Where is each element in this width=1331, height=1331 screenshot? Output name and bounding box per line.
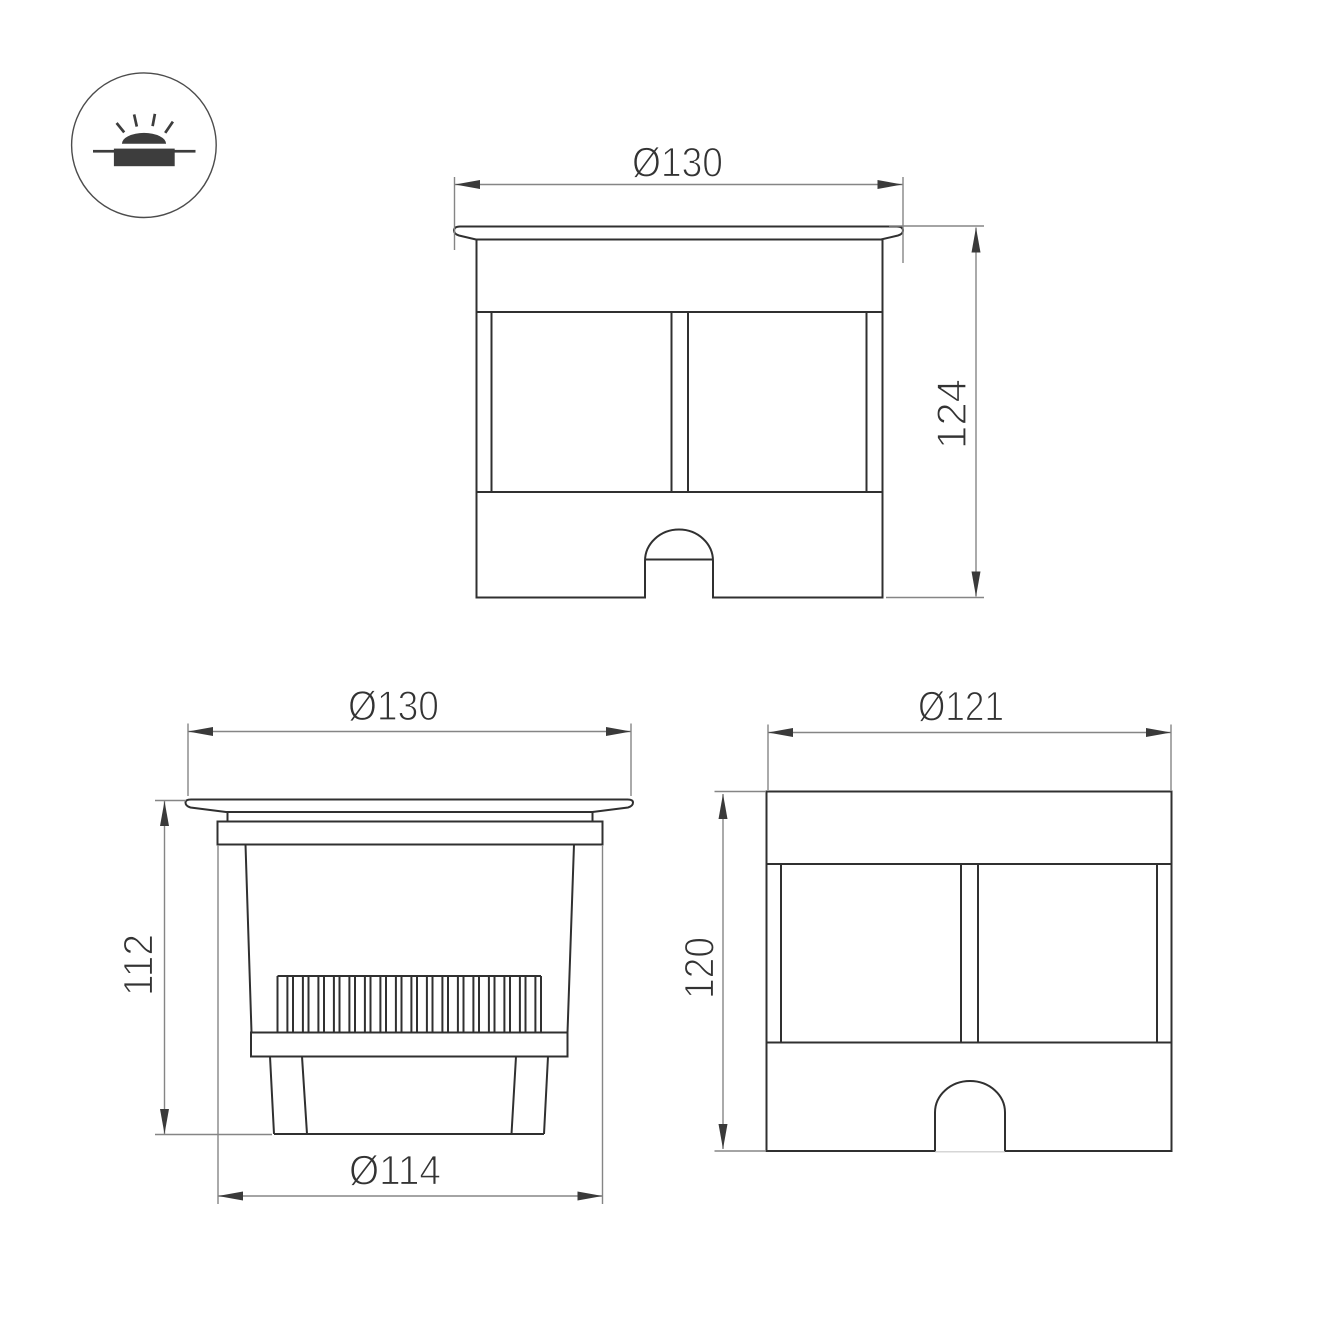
svg-text:Ø114: Ø114 <box>349 1147 441 1194</box>
svg-text:Ø121: Ø121 <box>918 683 1004 730</box>
svg-text:Ø130: Ø130 <box>632 139 723 186</box>
svg-text:124: 124 <box>928 379 975 449</box>
svg-text:112: 112 <box>115 934 162 996</box>
svg-text:Ø130: Ø130 <box>348 682 439 729</box>
svg-text:120: 120 <box>676 937 723 999</box>
